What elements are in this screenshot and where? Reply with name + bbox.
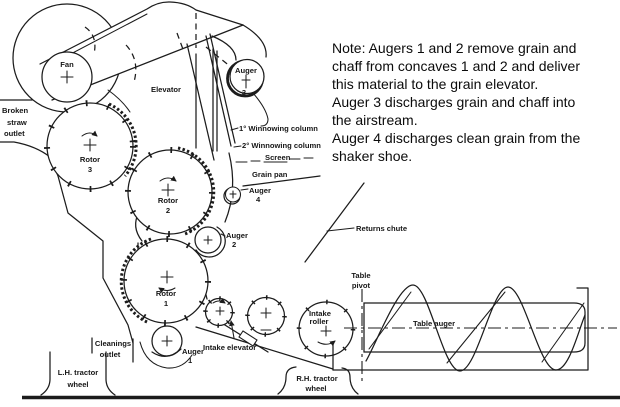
- rotor-2: Rotor 2: [128, 148, 214, 234]
- table-assembly: Table auger Table pivot: [333, 271, 617, 384]
- intake-elevator-label: Intake elevator: [203, 343, 256, 352]
- fan-assembly: Fan: [13, 2, 243, 112]
- diagram-canvas: Fan Broken straw outlet Elevator 1° Winn…: [0, 0, 620, 407]
- rotor1-label: Rotor: [156, 289, 176, 298]
- winnowing-column-2-label: 2° Winnowing column: [242, 141, 321, 150]
- broken-straw-label-2: straw: [7, 118, 27, 127]
- rotor-3: Rotor 3: [47, 103, 136, 189]
- auger4-label: Auger: [249, 186, 271, 195]
- table-auger-label: Table auger: [413, 319, 455, 328]
- screen-label: Screen: [265, 153, 291, 162]
- note-line-5: the airstream.: [332, 112, 418, 128]
- returns-chute: Returns chute: [305, 183, 407, 262]
- combine-harvester-diagram: Fan Broken straw outlet Elevator 1° Winn…: [0, 0, 620, 407]
- intake-section: Intake elevator Intake roller: [196, 298, 353, 370]
- auger3-spout: [253, 93, 268, 126]
- straw-duct-bottom: [0, 142, 50, 157]
- rotor2-number: 2: [166, 206, 170, 215]
- lh-wheel-left-edge: [41, 352, 50, 395]
- note-line-7: shaker shoe.: [332, 148, 412, 164]
- note-line-6: Auger 4 discharges clean grain from the: [332, 130, 580, 146]
- fan-label: Fan: [60, 60, 74, 69]
- auger4-leader: [241, 189, 248, 190]
- winnowing-column-1-label: 1° Winnowing column: [239, 124, 318, 133]
- winnowing-column-lines: [187, 34, 235, 160]
- rh-wheel-left-edge: [278, 367, 296, 394]
- rotor3-label: Rotor: [80, 155, 100, 164]
- grain-pan: Grain pan: [243, 170, 320, 186]
- intake-roller-label-2: roller: [310, 317, 329, 326]
- head-chute-outer: [243, 25, 266, 57]
- note-line-2: chaff from concaves 1 and 2 and deliver: [332, 58, 580, 74]
- grain-pan-label: Grain pan: [252, 170, 288, 179]
- auger2-number: 2: [232, 240, 236, 249]
- winnowing-section: 1° Winnowing column 2° Winnowing column …: [187, 34, 321, 162]
- elevator-label: Elevator: [151, 85, 181, 94]
- auger1-label: Auger: [182, 347, 204, 356]
- broken-straw-outlet: Broken straw outlet: [0, 100, 50, 157]
- elevator-walls: [196, 49, 217, 151]
- table-pivot-label-2: pivot: [352, 281, 371, 290]
- auger3-circle: [230, 60, 264, 94]
- rotor2-label: Rotor: [158, 196, 178, 205]
- auger1-number: 1: [188, 356, 193, 365]
- broken-straw-label-3: outlet: [4, 129, 25, 138]
- rh-wheel-label-2: wheel: [304, 384, 326, 393]
- rh-tractor-wheel: R.H. tractor wheel: [278, 367, 358, 394]
- note-block: Note: Augers 1 and 2 remove grain and ch…: [332, 40, 580, 164]
- lh-wheel-label-1: L.H. tractor: [58, 368, 99, 377]
- returns-chute-tick: [327, 228, 354, 231]
- feed-roller-small: [206, 299, 233, 326]
- broken-straw-label-1: Broken: [2, 106, 29, 115]
- auger3-label: Auger: [235, 66, 257, 75]
- cleanings-outlet-label-1: Cleanings: [95, 339, 131, 348]
- cleanings-outlet-label-2: outlet: [100, 350, 121, 359]
- returns-chute-label: Returns chute: [356, 224, 407, 233]
- note-line-3: this material to the grain elevator.: [332, 76, 538, 92]
- rotor2-circle: [128, 150, 212, 234]
- returns-chute-line: [305, 183, 364, 262]
- rotor3-number: 3: [88, 165, 92, 174]
- rotor1-circle: [124, 239, 208, 323]
- auger4-number: 4: [256, 195, 261, 204]
- auger3-number: 3: [242, 88, 246, 97]
- auger2-label: Auger: [226, 231, 248, 240]
- winnowing2-leader: [234, 146, 241, 147]
- rotor-1: Rotor 1: [121, 239, 208, 323]
- rh-wheel-right-edge: [342, 368, 358, 394]
- table-pivot-label-1: Table: [351, 271, 370, 280]
- note-line-1: Note: Augers 1 and 2 remove grain and: [332, 40, 576, 56]
- note-line-4: Auger 3 discharges grain and chaff into: [332, 94, 576, 110]
- auger-1: Auger 1: [140, 326, 204, 368]
- lh-wheel-label-2: wheel: [66, 380, 88, 389]
- rh-wheel-label-1: R.H. tractor: [296, 374, 337, 383]
- auger-4: Auger 4: [224, 186, 271, 204]
- cleanings-outlet: Cleanings outlet: [92, 338, 133, 362]
